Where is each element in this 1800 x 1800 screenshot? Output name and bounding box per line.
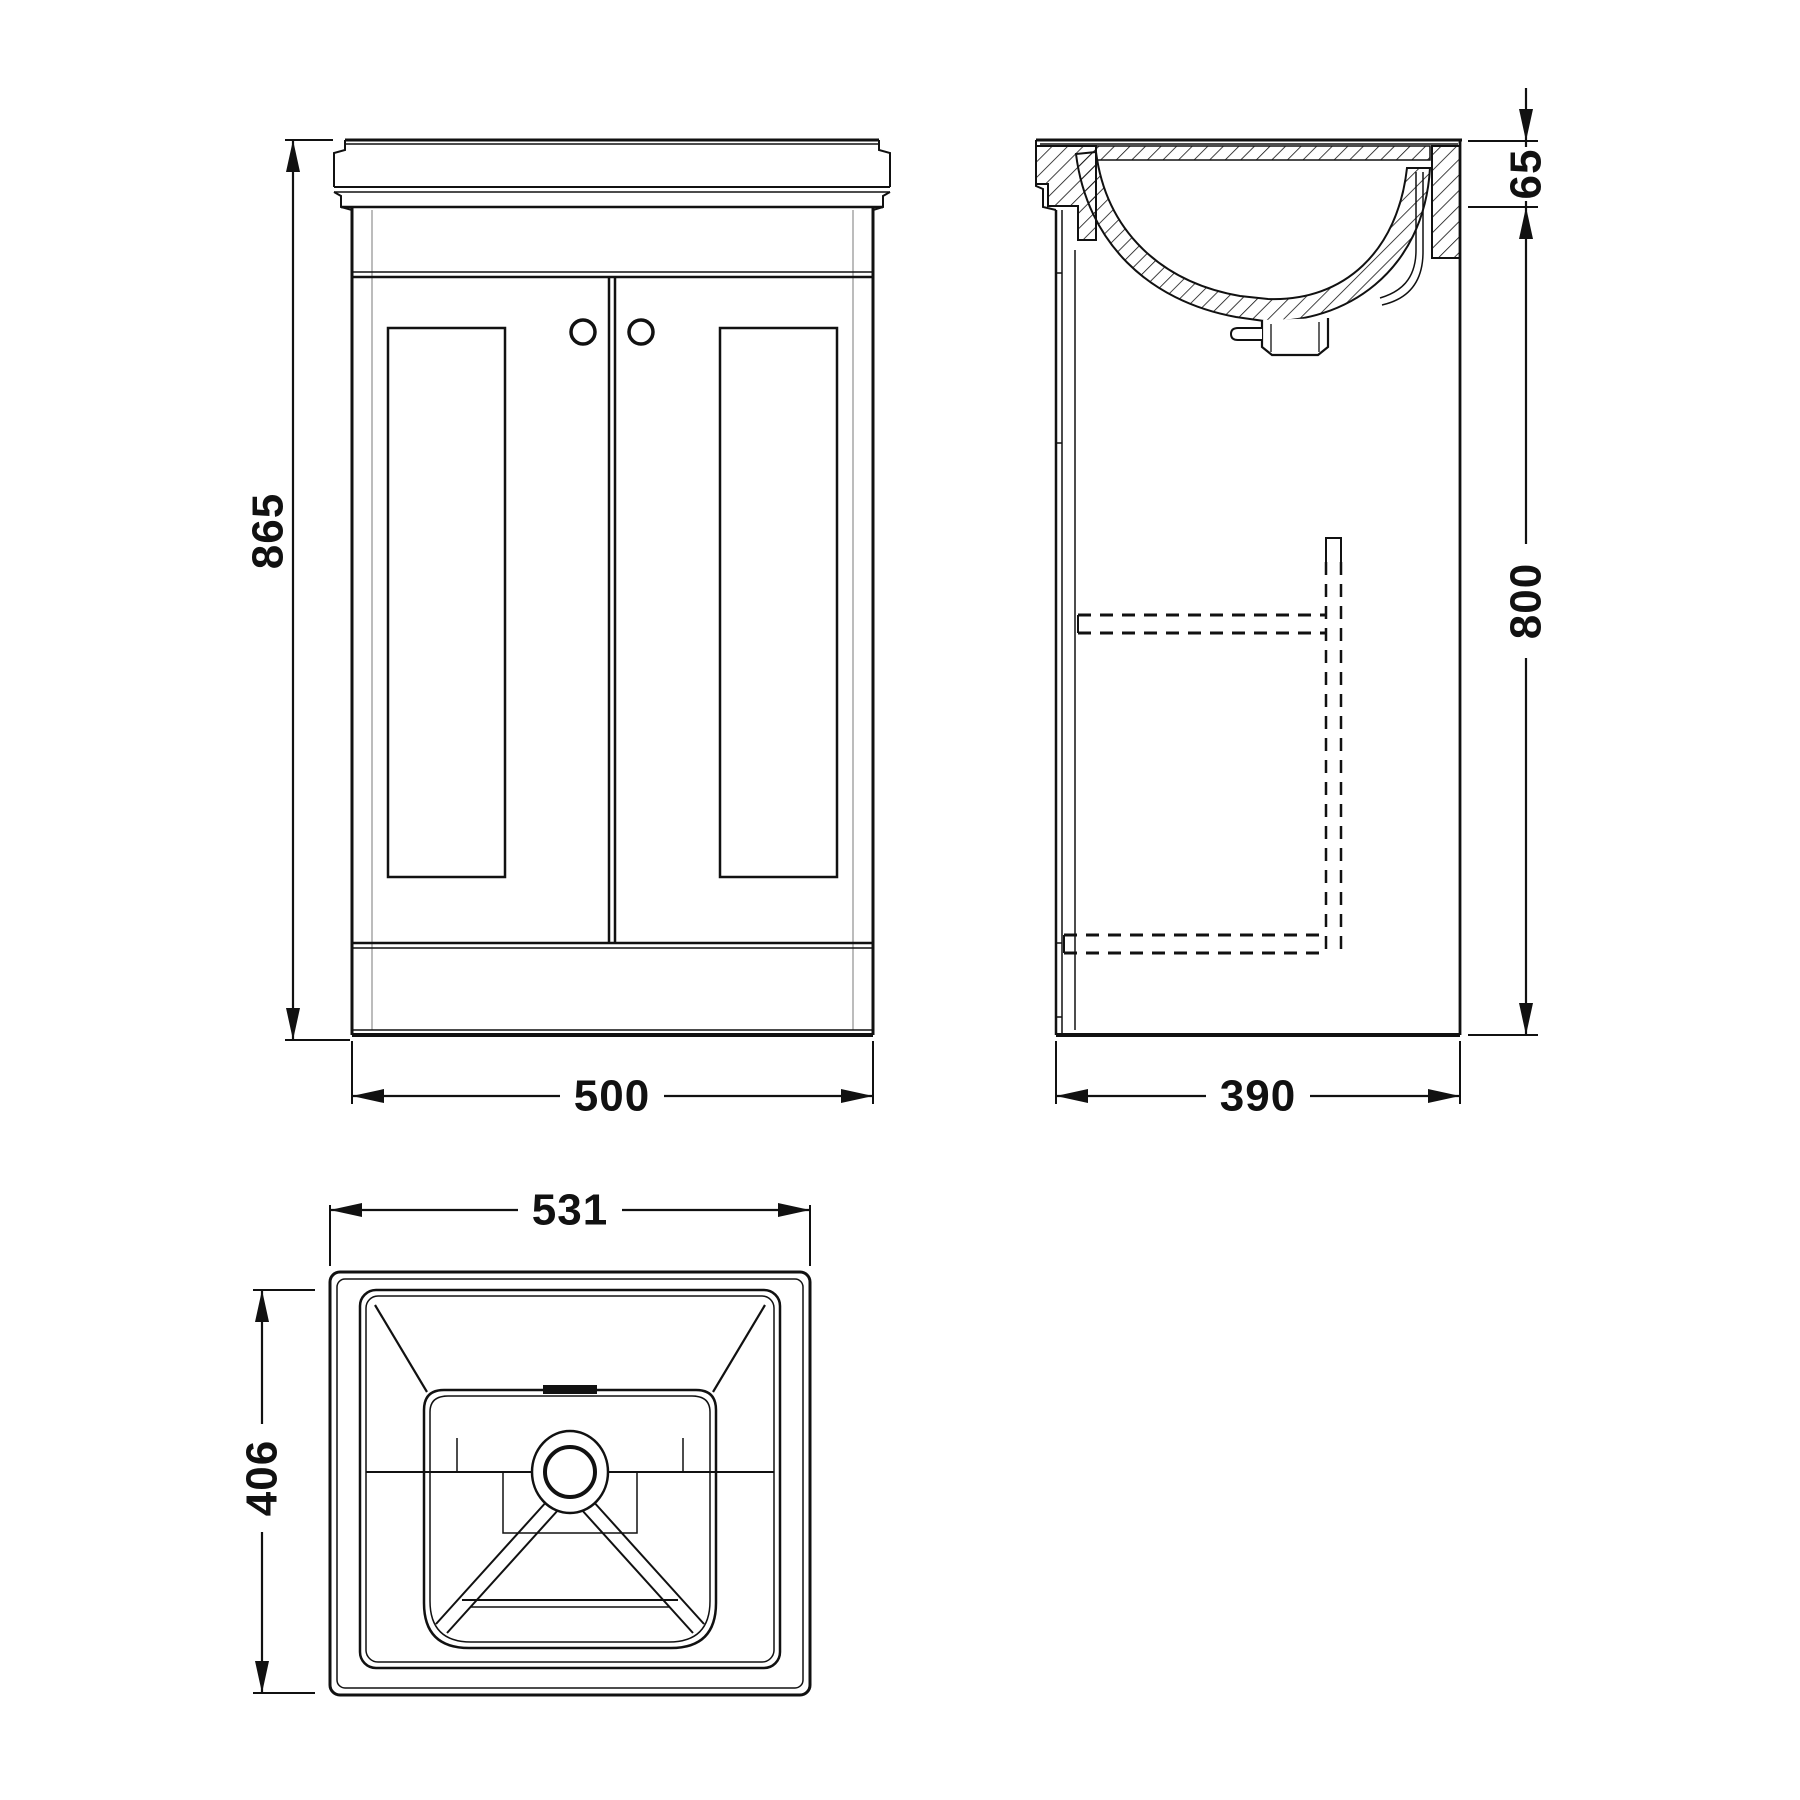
side-cabinet-height-label: 800 <box>1502 563 1551 639</box>
side-basin-height-label: 65 <box>1502 149 1551 200</box>
overflow-pipe <box>1231 328 1262 340</box>
plan-width-label: 531 <box>532 1186 608 1235</box>
front-height-label: 865 <box>244 493 293 569</box>
technical-drawing-sheet: 865 500 <box>0 0 1800 1800</box>
front-width-label: 500 <box>574 1072 650 1121</box>
plan-depth-label: 406 <box>238 1440 287 1516</box>
drain-hole <box>545 1447 595 1497</box>
drain-outlet <box>1262 318 1328 355</box>
basin-back-rim-section <box>1432 146 1460 258</box>
side-depth-label: 390 <box>1220 1072 1296 1121</box>
overflow-slot <box>543 1385 597 1394</box>
vanity-unit-dimension-drawing: 865 500 <box>0 0 1800 1800</box>
basin-rim-section <box>1096 146 1430 160</box>
